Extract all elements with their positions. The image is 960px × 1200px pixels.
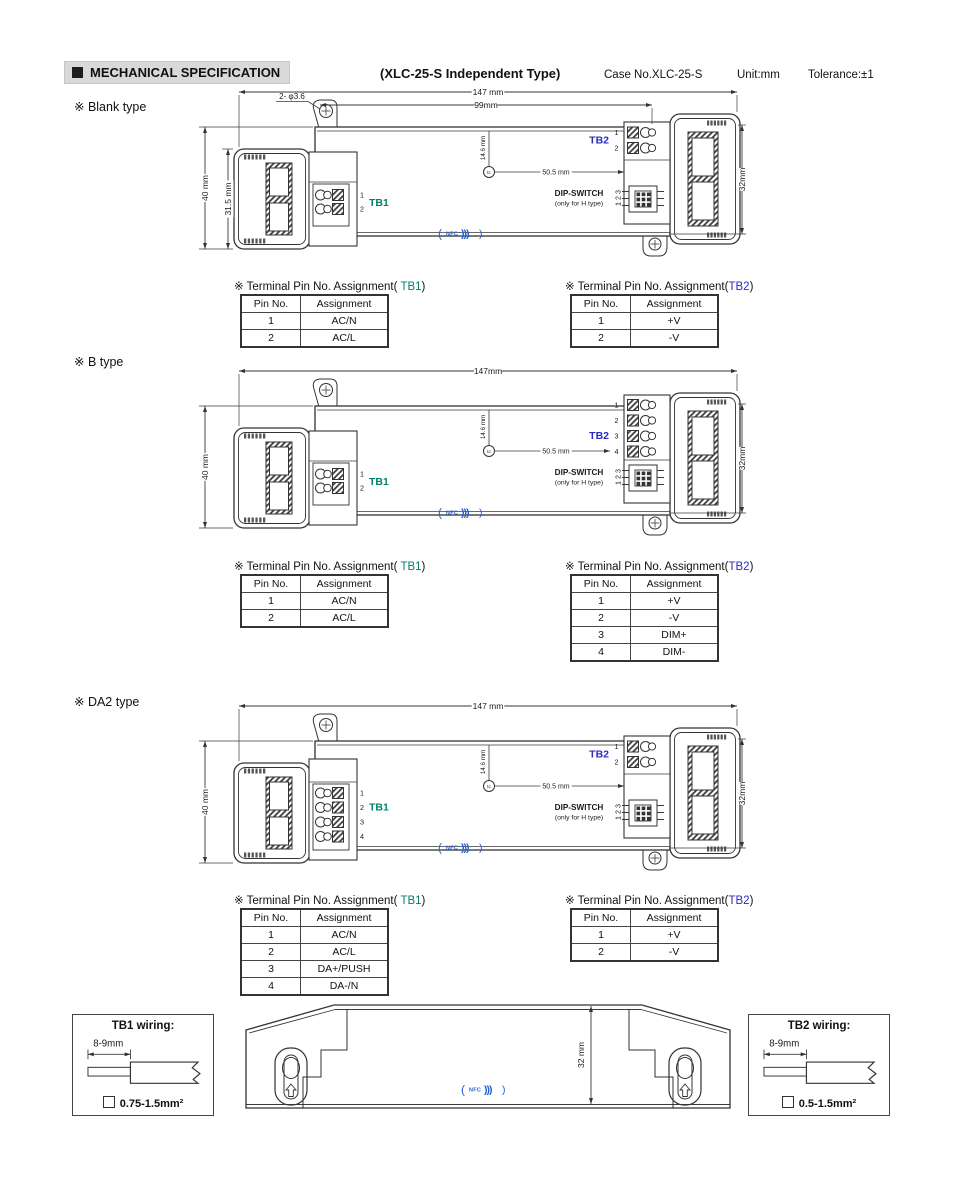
tb2-wire-spec: 0.5-1.5mm² xyxy=(749,1096,889,1110)
table-cell: -V xyxy=(631,610,719,627)
svg-text:1: 1 xyxy=(615,742,619,751)
bullet-square-icon xyxy=(72,67,83,78)
svg-text:TB2: TB2 xyxy=(589,430,609,442)
tb2-table-title: ※ Terminal Pin No. Assignment(TB2) xyxy=(565,559,753,573)
table-cell: 3 xyxy=(241,961,301,978)
table-row: 1+V xyxy=(571,313,718,330)
svg-text:31.5 mm: 31.5 mm xyxy=(223,182,233,215)
tc-point: tc xyxy=(484,167,495,178)
table-cell: -V xyxy=(631,330,719,348)
tb1-table-title: ※ Terminal Pin No. Assignment( TB1) xyxy=(234,893,425,907)
svg-text:tc: tc xyxy=(487,170,491,176)
right-end-cap xyxy=(670,114,740,244)
tb1-table-title: ※ Terminal Pin No. Assignment( TB1) xyxy=(234,279,425,293)
table-cell: DA+/PUSH xyxy=(301,961,389,978)
svg-text:TB1: TB1 xyxy=(369,197,389,209)
table-cell: AC/N xyxy=(301,927,389,944)
table-header-cell: Assignment xyxy=(301,295,389,313)
svg-text:50.5 mm: 50.5 mm xyxy=(542,170,569,177)
svg-text:1 2 3: 1 2 3 xyxy=(614,190,623,206)
svg-text:NFC: NFC xyxy=(469,1088,481,1094)
svg-text:40 mm: 40 mm xyxy=(200,175,210,201)
table-header-cell: Pin No. xyxy=(241,909,301,927)
spec-title: (XLC-25-S Independent Type) xyxy=(380,66,560,81)
tb1-pin-table-da2: Pin No.Assignment1AC/N2AC/L3DA+/PUSH4DA-… xyxy=(240,908,389,996)
pin-assignment-table: Pin No.Assignment1+V2-V xyxy=(570,908,719,962)
svg-text:2: 2 xyxy=(615,416,619,425)
table-header-cell: Assignment xyxy=(631,575,719,593)
mounting-tab-top xyxy=(313,714,337,742)
mechanical-specification-page: MECHANICAL SPECIFICATION (XLC-25-S Indep… xyxy=(0,0,960,1200)
wire-strip-drawing: 8-9mm xyxy=(73,1035,213,1091)
tolerance-label: Tolerance:±1 xyxy=(808,69,874,81)
svg-text:14.6 mm: 14.6 mm xyxy=(480,415,487,440)
svg-text:3: 3 xyxy=(360,818,364,827)
table-cell: 2 xyxy=(241,610,301,628)
svg-text:1: 1 xyxy=(615,128,619,137)
tb2-pin-table-b: Pin No.Assignment1+V2-V3DIM+4DIM- xyxy=(570,574,719,662)
svg-text:(: ( xyxy=(461,1083,465,1097)
left-end-cap xyxy=(234,149,310,249)
section-header-badge: MECHANICAL SPECIFICATION xyxy=(64,61,290,84)
svg-text:50.5 mm: 50.5 mm xyxy=(542,449,569,456)
table-header-row: Pin No.Assignment xyxy=(571,909,718,927)
table-cell: +V xyxy=(631,927,719,944)
tb2-pin-table-blank: Pin No.Assignment1+V2-V xyxy=(570,294,719,348)
table-cell: 4 xyxy=(571,644,631,662)
tb1-table-title: ※ Terminal Pin No. Assignment( TB1) xyxy=(234,559,425,573)
svg-text:14.6 mm: 14.6 mm xyxy=(480,136,487,161)
svg-text:NFC: NFC xyxy=(446,846,458,852)
table-row: 1+V xyxy=(571,593,718,610)
section-label-blank: ※ Blank type xyxy=(74,99,146,114)
mounting-tab-bottom xyxy=(643,849,667,870)
table-row: 2AC/L xyxy=(241,330,388,348)
svg-text:TB2: TB2 xyxy=(589,749,609,761)
device-drawing-da2: (NFC))))14.6 mmtc50.5 mm1234TB112TB2DIP-… xyxy=(182,698,762,888)
table-cell: AC/N xyxy=(301,313,389,330)
dip-pin-numbers: 1 2 3 xyxy=(614,804,623,820)
svg-text:32 mm: 32 mm xyxy=(576,1042,586,1068)
tb1-wiring-box: TB1 wiring: 8-9mm 0.75-1.5mm² xyxy=(72,1014,214,1116)
table-cell: 2 xyxy=(241,944,301,961)
table-cell: 1 xyxy=(241,313,301,330)
table-header-cell: Assignment xyxy=(631,909,719,927)
table-cell: 1 xyxy=(571,593,631,610)
table-cell: 3 xyxy=(571,627,631,644)
svg-text:2: 2 xyxy=(360,484,364,493)
section-label-da2: ※ DA2 type xyxy=(74,694,139,709)
table-cell: AC/L xyxy=(301,610,389,628)
table-cell: DIM- xyxy=(631,644,719,662)
table-header-cell: Pin No. xyxy=(571,295,631,313)
tb1-pin-table-blank: Pin No.Assignment1AC/N2AC/L xyxy=(240,294,389,348)
tc-point: tc xyxy=(484,781,495,792)
table-header-cell: Pin No. xyxy=(571,909,631,927)
checkbox-icon xyxy=(103,1096,115,1108)
wire-graphic xyxy=(806,1062,876,1083)
table-cell: DA-/N xyxy=(301,978,389,996)
svg-text:DIP-SWITCH: DIP-SWITCH xyxy=(555,468,604,477)
case-no: Case No.XLC-25-S xyxy=(604,69,702,81)
svg-text:147mm: 147mm xyxy=(474,366,502,376)
table-row: 2-V xyxy=(571,610,718,627)
pin-assignment-table: Pin No.Assignment1AC/N2AC/L xyxy=(240,574,389,628)
svg-text:TB2: TB2 xyxy=(589,135,609,147)
unit-label: Unit:mm xyxy=(737,69,780,81)
svg-text:))): ))) xyxy=(484,1084,492,1096)
svg-text:1: 1 xyxy=(360,789,364,798)
table-cell: +V xyxy=(631,313,719,330)
svg-text:2: 2 xyxy=(615,144,619,153)
table-cell: AC/L xyxy=(301,944,389,961)
svg-text:2: 2 xyxy=(615,758,619,767)
svg-text:1 2 3: 1 2 3 xyxy=(614,804,623,820)
svg-text:))): ))) xyxy=(461,228,469,240)
table-cell: 2 xyxy=(571,944,631,962)
section-label-b: ※ B type xyxy=(74,354,123,369)
svg-text:2- φ3.6: 2- φ3.6 xyxy=(279,92,305,101)
tb1-pin-table-b: Pin No.Assignment1AC/N2AC/L xyxy=(240,574,389,628)
table-header-cell: Assignment xyxy=(631,295,719,313)
svg-text:NFC: NFC xyxy=(446,232,458,238)
svg-text:(: ( xyxy=(438,227,442,241)
dip-pin-numbers: 1 2 3 xyxy=(614,190,623,206)
tb2-wiring-box: TB2 wiring: 8-9mm 0.5-1.5mm² xyxy=(748,1014,890,1116)
table-cell: 1 xyxy=(571,927,631,944)
left-end-cap xyxy=(234,763,310,863)
case-profile-drawing: 32 mm(NFC)))) xyxy=(233,1000,743,1140)
svg-text:1 2 3: 1 2 3 xyxy=(614,469,623,485)
right-end-cap xyxy=(670,728,740,858)
svg-text:TB1: TB1 xyxy=(369,476,389,488)
table-header-cell: Pin No. xyxy=(571,575,631,593)
table-cell: 2 xyxy=(571,610,631,627)
svg-text:4: 4 xyxy=(360,832,364,841)
table-row: 1AC/N xyxy=(241,927,388,944)
svg-text:4: 4 xyxy=(615,447,619,456)
table-row: 1+V xyxy=(571,927,718,944)
table-header-cell: Assignment xyxy=(301,909,389,927)
table-row: 1AC/N xyxy=(241,313,388,330)
svg-text:32mm: 32mm xyxy=(737,447,747,471)
table-cell: 1 xyxy=(241,593,301,610)
svg-text:50.5 mm: 50.5 mm xyxy=(542,784,569,791)
svg-text:2: 2 xyxy=(360,803,364,812)
svg-text:tc: tc xyxy=(487,784,491,790)
pin-assignment-table: Pin No.Assignment1AC/N2AC/L xyxy=(240,294,389,348)
checkbox-icon xyxy=(782,1096,794,1108)
svg-text:147 mm: 147 mm xyxy=(473,87,504,97)
table-cell: -V xyxy=(631,944,719,962)
table-cell: AC/L xyxy=(301,330,389,348)
svg-text:))): ))) xyxy=(461,507,469,519)
svg-text:TB1: TB1 xyxy=(369,802,389,814)
svg-text:): ) xyxy=(479,228,483,240)
svg-text:1: 1 xyxy=(615,401,619,410)
svg-text:(only for H type): (only for H type) xyxy=(555,815,603,822)
table-cell: 1 xyxy=(571,313,631,330)
table-row: 3DA+/PUSH xyxy=(241,961,388,978)
table-cell: AC/N xyxy=(301,593,389,610)
svg-text:1: 1 xyxy=(360,470,364,479)
svg-text:8-9mm: 8-9mm xyxy=(769,1039,799,1050)
svg-text:): ) xyxy=(502,1084,506,1096)
tb2-pin-table-da2: Pin No.Assignment1+V2-V xyxy=(570,908,719,962)
dip-pin-numbers: 1 2 3 xyxy=(614,469,623,485)
svg-text:2: 2 xyxy=(360,205,364,214)
svg-text:8-9mm: 8-9mm xyxy=(93,1039,123,1050)
table-cell: DIM+ xyxy=(631,627,719,644)
svg-text:(only for H type): (only for H type) xyxy=(555,480,603,487)
table-row: 4DA-/N xyxy=(241,978,388,996)
svg-text:14.6 mm: 14.6 mm xyxy=(480,750,487,775)
table-cell: 2 xyxy=(241,330,301,348)
table-cell: 1 xyxy=(241,927,301,944)
table-row: 2AC/L xyxy=(241,944,388,961)
svg-text:99mm: 99mm xyxy=(474,100,498,110)
device-drawing-b: (NFC))))14.6 mmtc50.5 mm12TB11234TB2DIP-… xyxy=(182,363,762,553)
table-cell: 2 xyxy=(571,330,631,348)
table-row: 3DIM+ xyxy=(571,627,718,644)
table-header-cell: Pin No. xyxy=(241,575,301,593)
svg-text:): ) xyxy=(479,842,483,854)
svg-text:))): ))) xyxy=(461,842,469,854)
pin-assignment-table: Pin No.Assignment1+V2-V xyxy=(570,294,719,348)
svg-text:DIP-SWITCH: DIP-SWITCH xyxy=(555,189,604,198)
mounting-tab-bottom xyxy=(643,235,667,256)
mounting-tab-bottom xyxy=(643,514,667,535)
device-drawing-blank: (NFC))))14.6 mmtc50.5 mm12TB112TB2DIP-SW… xyxy=(182,84,762,274)
svg-text:3: 3 xyxy=(615,432,619,441)
table-row: 2-V xyxy=(571,944,718,962)
wire-strip-drawing: 8-9mm xyxy=(749,1035,889,1091)
svg-text:40 mm: 40 mm xyxy=(200,454,210,480)
table-row: 4DIM- xyxy=(571,644,718,662)
table-row: 2AC/L xyxy=(241,610,388,628)
svg-text:DIP-SWITCH: DIP-SWITCH xyxy=(555,803,604,812)
svg-text:32mm: 32mm xyxy=(737,168,747,192)
table-header-row: Pin No.Assignment xyxy=(571,295,718,313)
table-row: 2-V xyxy=(571,330,718,348)
svg-text:147 mm: 147 mm xyxy=(473,701,504,711)
svg-text:(only for H type): (only for H type) xyxy=(555,201,603,208)
table-header-row: Pin No.Assignment xyxy=(241,909,388,927)
svg-text:(: ( xyxy=(438,841,442,855)
tb1-wiring-title: TB1 wiring: xyxy=(73,1020,213,1032)
pin-assignment-table: Pin No.Assignment1+V2-V3DIM+4DIM- xyxy=(570,574,719,662)
tb1-wire-spec: 0.75-1.5mm² xyxy=(73,1096,213,1110)
mounting-tab-top xyxy=(313,379,337,407)
svg-text:40 mm: 40 mm xyxy=(200,789,210,815)
svg-text:NFC: NFC xyxy=(446,511,458,517)
right-end-cap xyxy=(670,393,740,523)
table-header-row: Pin No.Assignment xyxy=(241,575,388,593)
tb2-table-title: ※ Terminal Pin No. Assignment(TB2) xyxy=(565,893,753,907)
table-header-cell: Assignment xyxy=(301,575,389,593)
table-cell: +V xyxy=(631,593,719,610)
section-header-label: MECHANICAL SPECIFICATION xyxy=(90,65,280,80)
table-header-row: Pin No.Assignment xyxy=(571,575,718,593)
svg-text:32mm: 32mm xyxy=(737,782,747,806)
table-header-cell: Pin No. xyxy=(241,295,301,313)
svg-text:): ) xyxy=(479,507,483,519)
tb2-wiring-title: TB2 wiring: xyxy=(749,1020,889,1032)
wire-graphic xyxy=(130,1062,200,1083)
table-header-row: Pin No.Assignment xyxy=(241,295,388,313)
pin-assignment-table: Pin No.Assignment1AC/N2AC/L3DA+/PUSH4DA-… xyxy=(240,908,389,996)
svg-text:1: 1 xyxy=(360,191,364,200)
tb2-table-title: ※ Terminal Pin No. Assignment(TB2) xyxy=(565,279,753,293)
svg-text:tc: tc xyxy=(487,449,491,455)
left-end-cap xyxy=(234,428,310,528)
table-cell: 4 xyxy=(241,978,301,996)
table-row: 1AC/N xyxy=(241,593,388,610)
svg-text:(: ( xyxy=(438,506,442,520)
tc-point: tc xyxy=(484,446,495,457)
